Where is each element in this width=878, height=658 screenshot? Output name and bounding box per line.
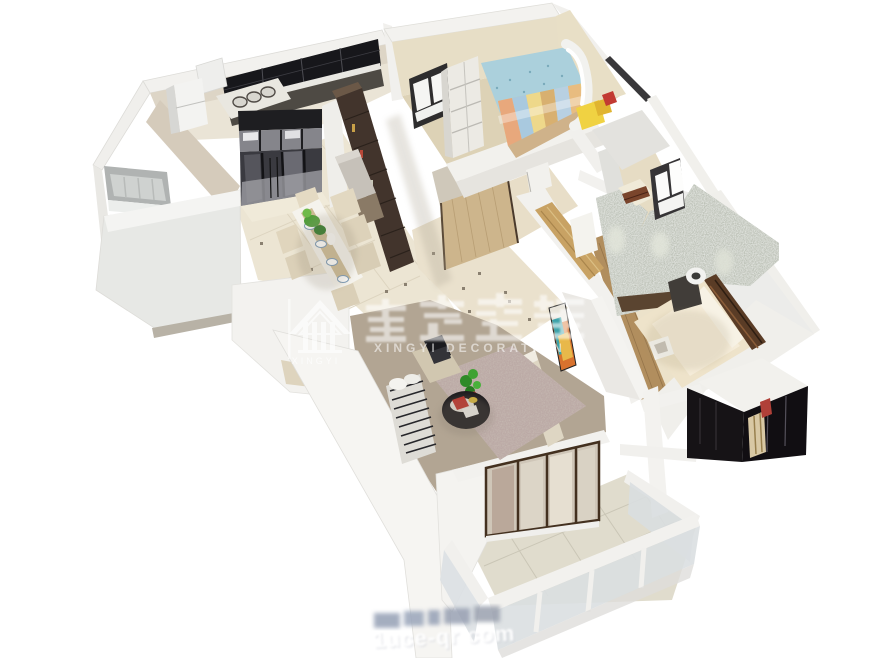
- svg-text:XINGYI: XINGYI: [292, 356, 341, 366]
- svg-text:XINGYI DECORATION: XINGYI DECORATION: [374, 341, 566, 355]
